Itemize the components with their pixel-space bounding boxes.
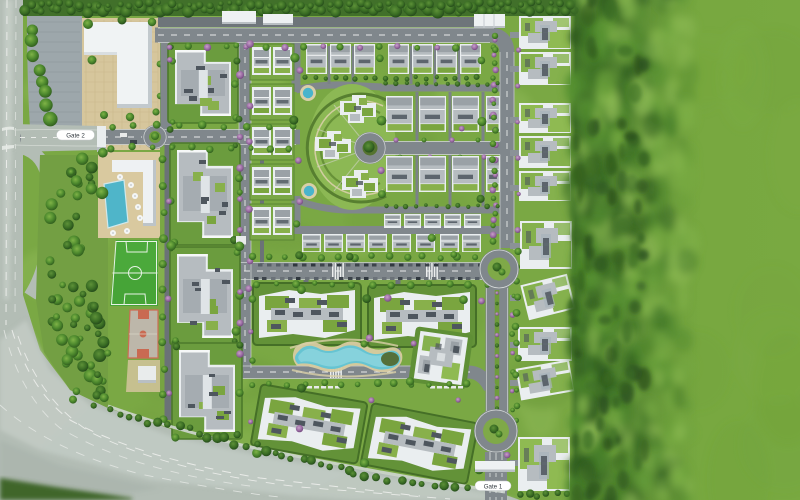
svg-text:Gate 2: Gate 2 — [66, 133, 85, 140]
svg-text:Gate 1: Gate 1 — [484, 483, 503, 490]
